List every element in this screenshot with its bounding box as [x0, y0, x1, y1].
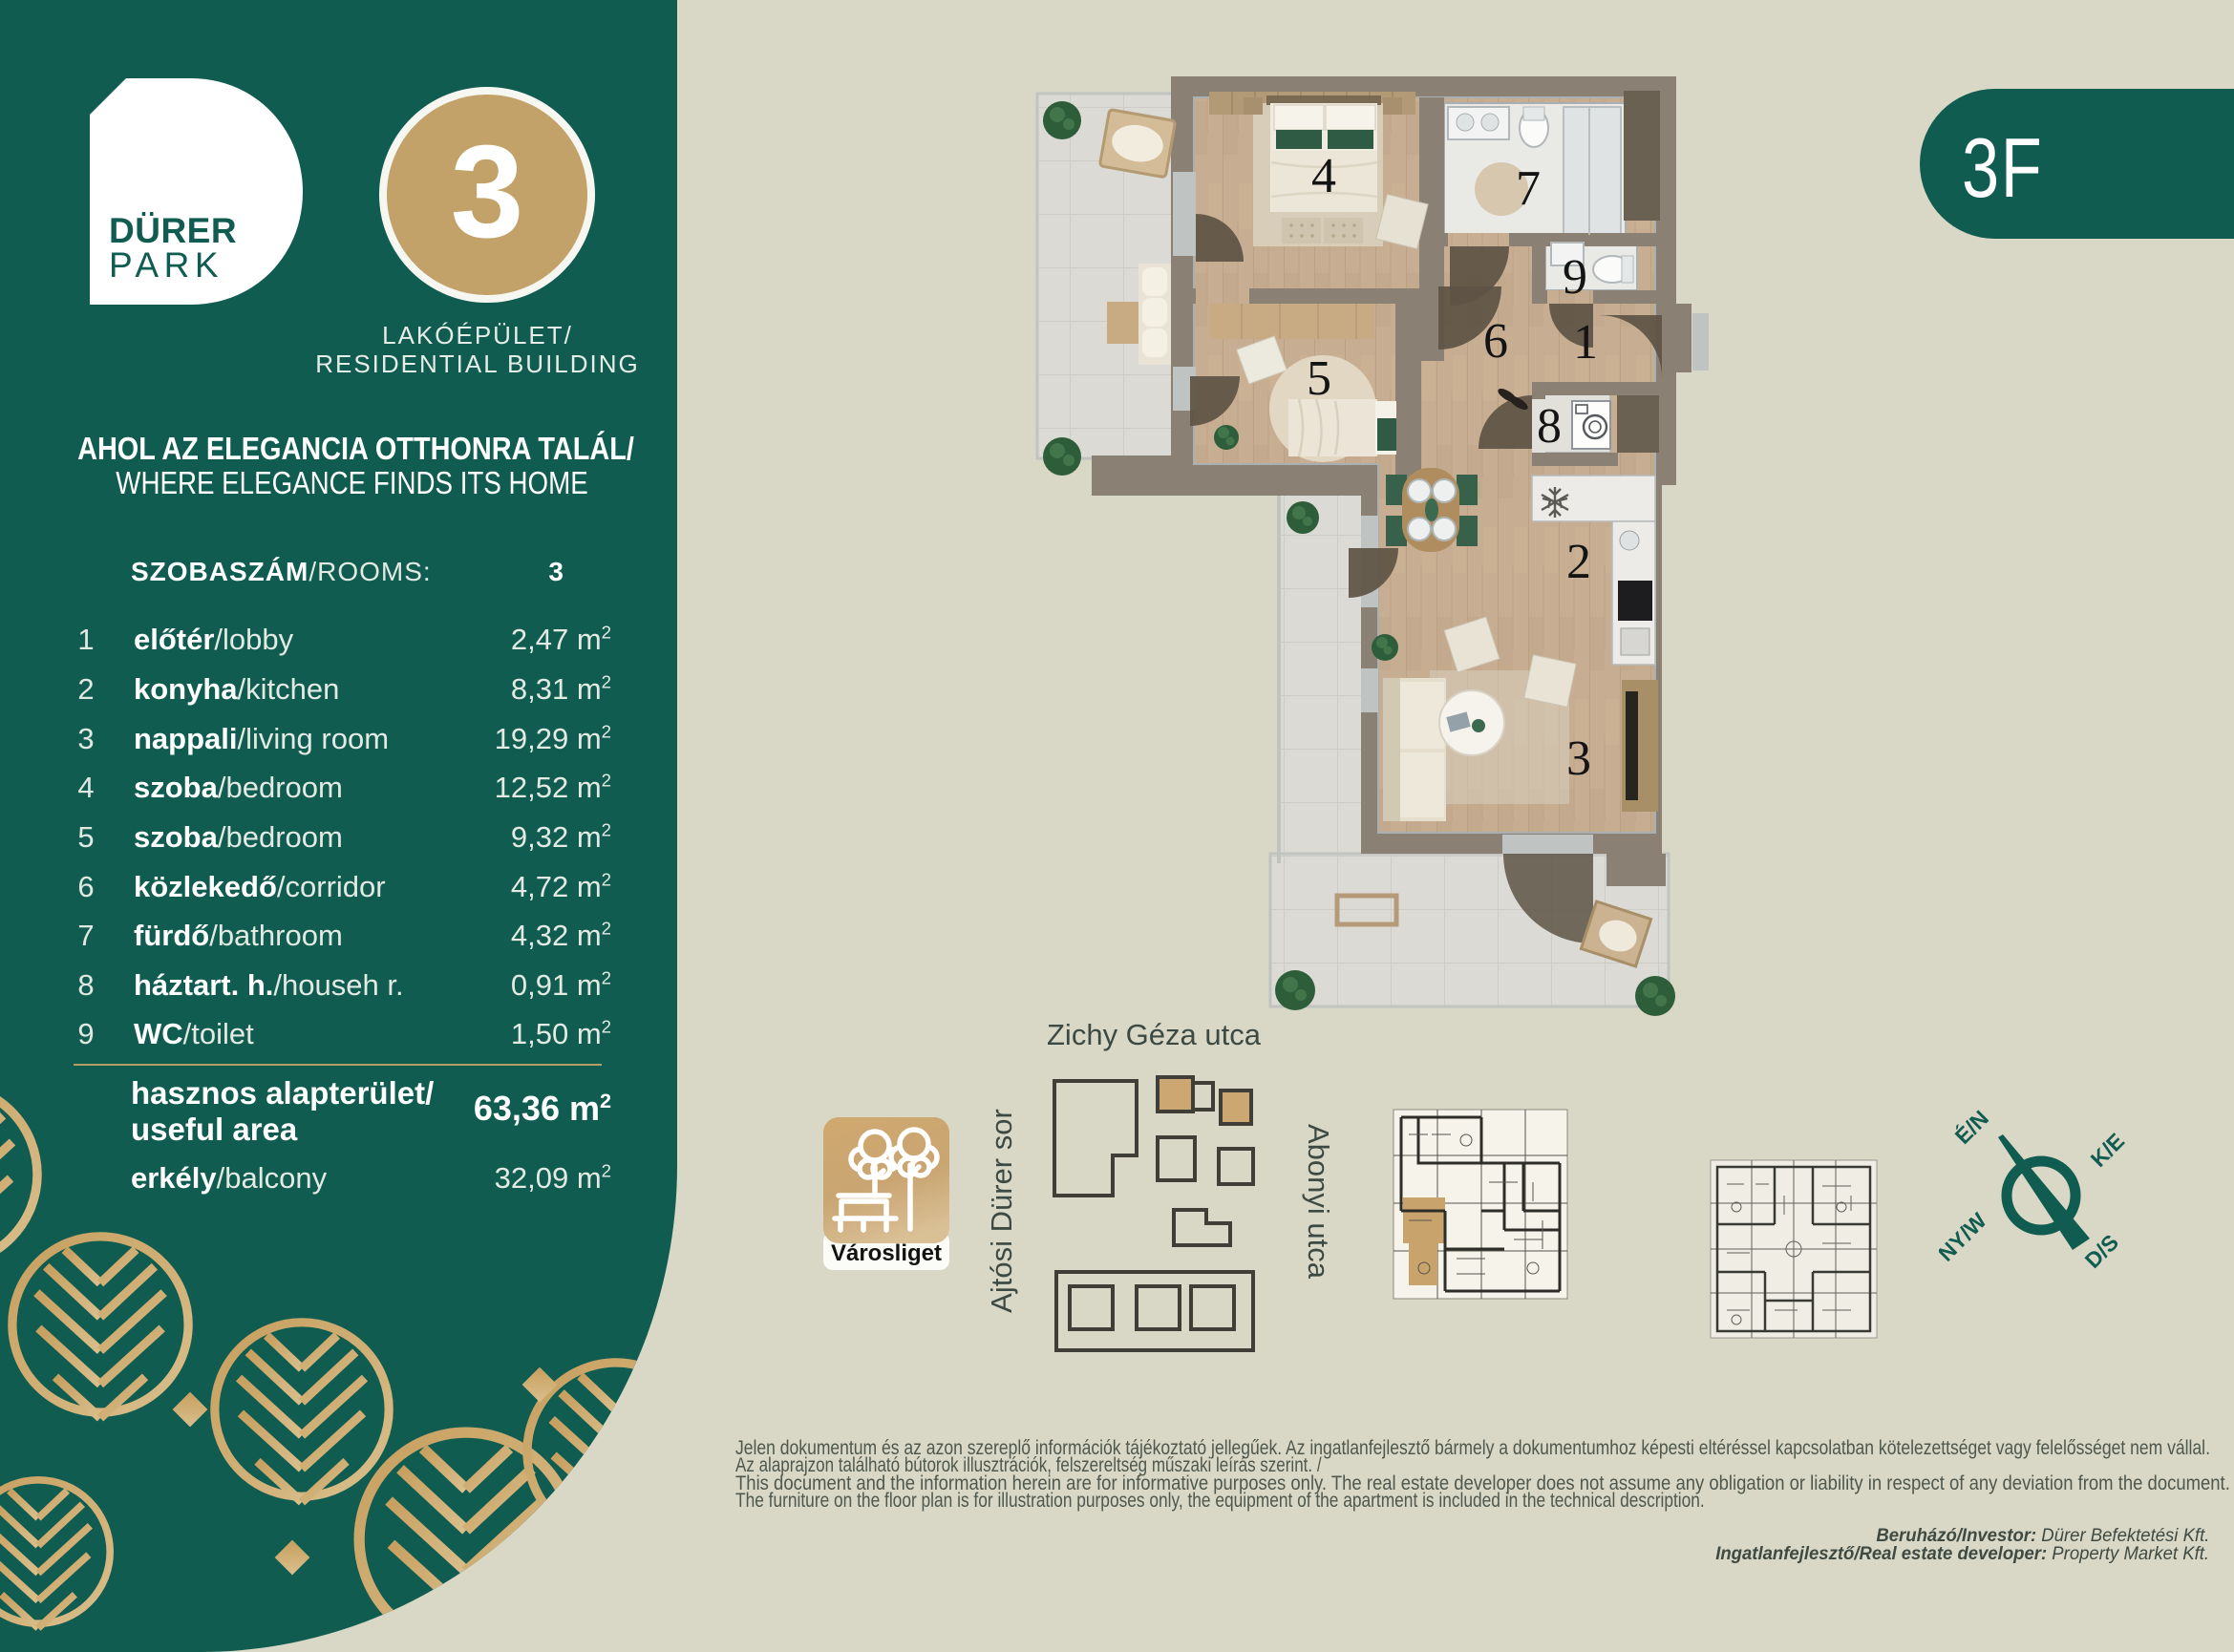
svg-text:5: 5 [1307, 351, 1331, 406]
svg-text:9: 9 [1563, 250, 1587, 305]
svg-text:DÜRER: DÜRER [109, 211, 237, 250]
svg-text:7: 7 [1516, 161, 1541, 216]
svg-text:PARK: PARK [109, 245, 223, 285]
svg-text:É/N: É/N [1949, 1105, 1993, 1149]
svg-text:3: 3 [1566, 731, 1591, 786]
svg-text:Városliget: Városliget [831, 1240, 942, 1266]
svg-text:K/E: K/E [2086, 1129, 2129, 1172]
svg-text:1: 1 [1573, 315, 1598, 370]
svg-text:Zichy Géza utca: Zichy Géza utca [1047, 1018, 1262, 1051]
svg-text:Abonyi utca: Abonyi utca [1302, 1124, 1335, 1280]
svg-text:8: 8 [1537, 399, 1562, 454]
svg-text:2: 2 [1566, 535, 1591, 589]
svg-text:NY/W: NY/W [1939, 1208, 1991, 1266]
svg-text:6: 6 [1483, 314, 1508, 369]
svg-text:4: 4 [1311, 149, 1336, 203]
svg-text:Ajtósi Dürer sor: Ajtósi Dürer sor [985, 1109, 1018, 1313]
